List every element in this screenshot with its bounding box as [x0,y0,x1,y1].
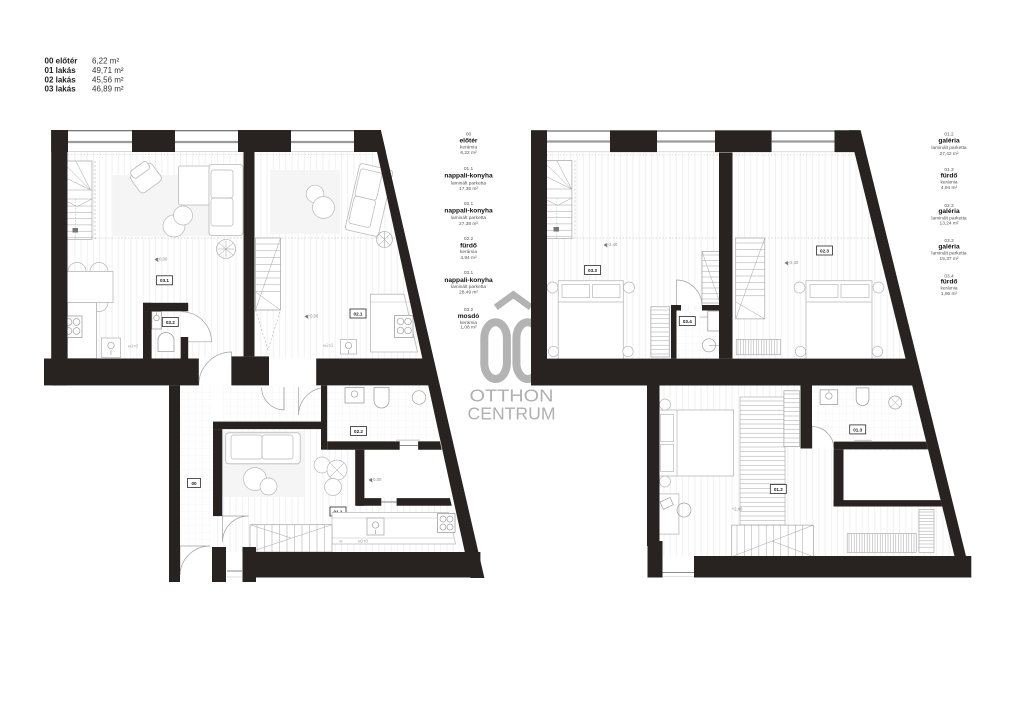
svg-text:kerámia: kerámia [940,180,957,186]
svg-text:03.3: 03.3 [588,268,597,273]
svg-text:HŰTŐ: HŰTŐ [323,343,333,348]
svg-text:49,71 m²: 49,71 m² [92,66,124,75]
svg-text:OTTHON: OTTHON [470,386,554,406]
svg-text:laminált parketta: laminált parketta [451,284,487,290]
svg-text:03.4: 03.4 [683,319,692,324]
svg-text:+0,00: +0,00 [157,257,168,262]
svg-text:HŰTŐ: HŰTŐ [358,539,368,544]
svg-text:27,38 m²: 27,38 m² [459,221,478,227]
svg-text:galéria: galéria [938,137,960,144]
svg-text:01.1: 01.1 [464,166,474,172]
svg-text:27,42 m²: 27,42 m² [940,151,959,157]
svg-text:4,94 m²: 4,94 m² [460,255,477,261]
svg-text:00: 00 [191,481,197,486]
svg-text:HŰTŐ: HŰTŐ [128,344,138,349]
svg-text:03.1: 03.1 [464,270,474,276]
svg-text:02 lakás: 02 lakás [45,75,77,84]
svg-text:+0,00: +0,00 [371,477,382,482]
svg-text:02.3: 02.3 [820,248,829,253]
svg-text:03 lakás: 03 lakás [45,85,77,94]
svg-text:02.2: 02.2 [354,429,363,434]
svg-text:galéria: galéria [938,208,960,215]
svg-text:1,95 m²: 1,95 m² [941,291,958,297]
svg-text:02.1: 02.1 [354,311,363,316]
svg-text:nappali-konyha: nappali-konyha [444,173,493,180]
svg-text:17,35 m²: 17,35 m² [459,186,478,192]
svg-text:galéria: galéria [938,243,960,250]
svg-text:+2,40: +2,40 [732,507,743,512]
svg-text:M: M [340,540,343,544]
svg-text:03.2: 03.2 [166,320,175,325]
svg-text:03.1: 03.1 [160,278,169,283]
svg-text:kerámia: kerámia [460,249,477,255]
svg-text:nappali-konyha: nappali-konyha [444,208,493,215]
svg-text:6,22 m²: 6,22 m² [460,150,477,156]
svg-text:01.3: 01.3 [853,427,862,432]
svg-text:CENTRUM: CENTRUM [468,404,556,424]
svg-text:4,94 m²: 4,94 m² [941,185,958,191]
svg-text:kerámia: kerámia [940,286,957,292]
svg-text:fürdő: fürdő [941,279,958,286]
svg-text:01.2: 01.2 [944,131,954,137]
svg-text:mosdó: mosdó [458,313,480,320]
svg-text:01 lakás: 01 lakás [45,66,77,75]
svg-text:nappali-konyha: nappali-konyha [444,277,493,284]
svg-text:+2,40: +2,40 [607,242,618,247]
svg-text:fürdő: fürdő [460,242,477,249]
svg-text:46,89 m²: 46,89 m² [92,85,124,94]
svg-text:fürdő: fürdő [941,173,958,180]
svg-text:kerámia: kerámia [460,145,477,151]
svg-text:laminált parketta: laminált parketta [451,180,487,186]
svg-text:01.2: 01.2 [774,487,783,492]
svg-text:6,22 m²: 6,22 m² [92,57,119,66]
svg-text:00 előtér: 00 előtér [45,57,78,66]
svg-text:laminált parketta: laminált parketta [451,215,487,221]
svg-text:13,24 m²: 13,24 m² [940,221,959,227]
svg-text:+0,00: +0,00 [308,314,319,319]
svg-text:15,37 m²: 15,37 m² [940,256,959,262]
svg-text:+2,40: +2,40 [788,260,799,265]
svg-text:28,49 m²: 28,49 m² [459,289,478,295]
svg-text:előtér: előtér [460,138,478,145]
svg-text:02.1: 02.1 [464,201,474,207]
svg-text:1,08 m²: 1,08 m² [460,325,477,331]
svg-text:02.2: 02.2 [464,236,474,242]
svg-text:laminált parketta: laminált parketta [931,215,967,221]
svg-text:laminált parketta: laminált parketta [931,145,967,151]
svg-text:45,56 m²: 45,56 m² [92,75,124,84]
svg-text:laminált parketta: laminált parketta [931,251,967,257]
